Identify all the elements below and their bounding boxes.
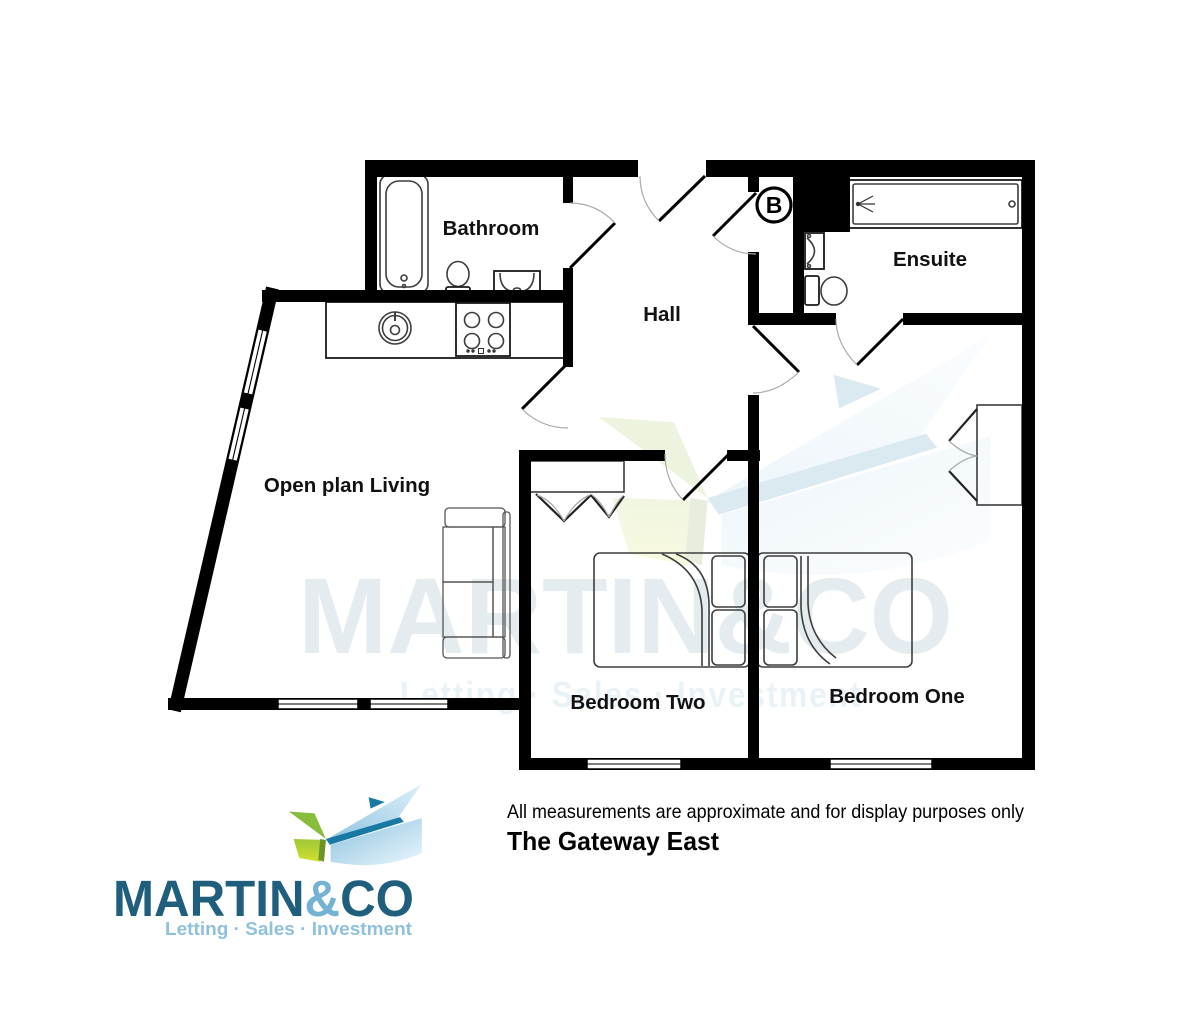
- room-label-bedroom-two: Bedroom Two: [570, 691, 705, 714]
- disclaimer-text: All measurements are approximate and for…: [507, 801, 1024, 823]
- cupboard-door: [713, 193, 756, 254]
- martin-co-logo: MARTIN&CO Letting · Sales · Investment: [113, 784, 422, 939]
- room-label-bathroom: Bathroom: [443, 217, 540, 240]
- room-label-living: Open plan Living: [264, 474, 430, 497]
- boiler-badge-label: B: [766, 192, 783, 218]
- page-title: The Gateway East: [507, 826, 719, 856]
- ensuite-door: [836, 319, 903, 365]
- boiler-cupboard-fill: [793, 176, 850, 232]
- ensuite-toilet: [805, 276, 847, 305]
- room-label-bedroom-one: Bedroom One: [829, 685, 965, 708]
- bedroom-one-door: [753, 326, 799, 393]
- slanted-wall: [168, 287, 279, 713]
- watermark-text: MARTIN&CO: [298, 555, 953, 676]
- wardrobe-bedroom-two: [528, 461, 624, 521]
- logo-emblem-icon: [289, 784, 422, 865]
- footer: All measurements are approximate and for…: [507, 801, 1024, 856]
- ensuite-sink: [805, 233, 824, 269]
- room-label-ensuite: Ensuite: [893, 248, 967, 271]
- room-label-hall: Hall: [643, 303, 681, 326]
- bathtub: [380, 175, 428, 293]
- bathroom-door: [570, 203, 615, 268]
- floorplan-canvas: MARTIN&CO Letting · Sales · Investment: [0, 0, 1200, 1025]
- floorplan-page: MARTIN&CO Letting · Sales · Investment: [0, 0, 1200, 1025]
- hob: [456, 303, 510, 356]
- boiler-badge: B: [757, 188, 791, 222]
- kitchen-counter: [326, 302, 566, 358]
- shower-bath: [849, 180, 1022, 228]
- entrance-door: [640, 176, 705, 221]
- watermark: MARTIN&CO Letting · Sales · Investment: [298, 336, 990, 715]
- living-door: [522, 363, 568, 428]
- logo-tagline: Letting · Sales · Investment: [165, 918, 412, 939]
